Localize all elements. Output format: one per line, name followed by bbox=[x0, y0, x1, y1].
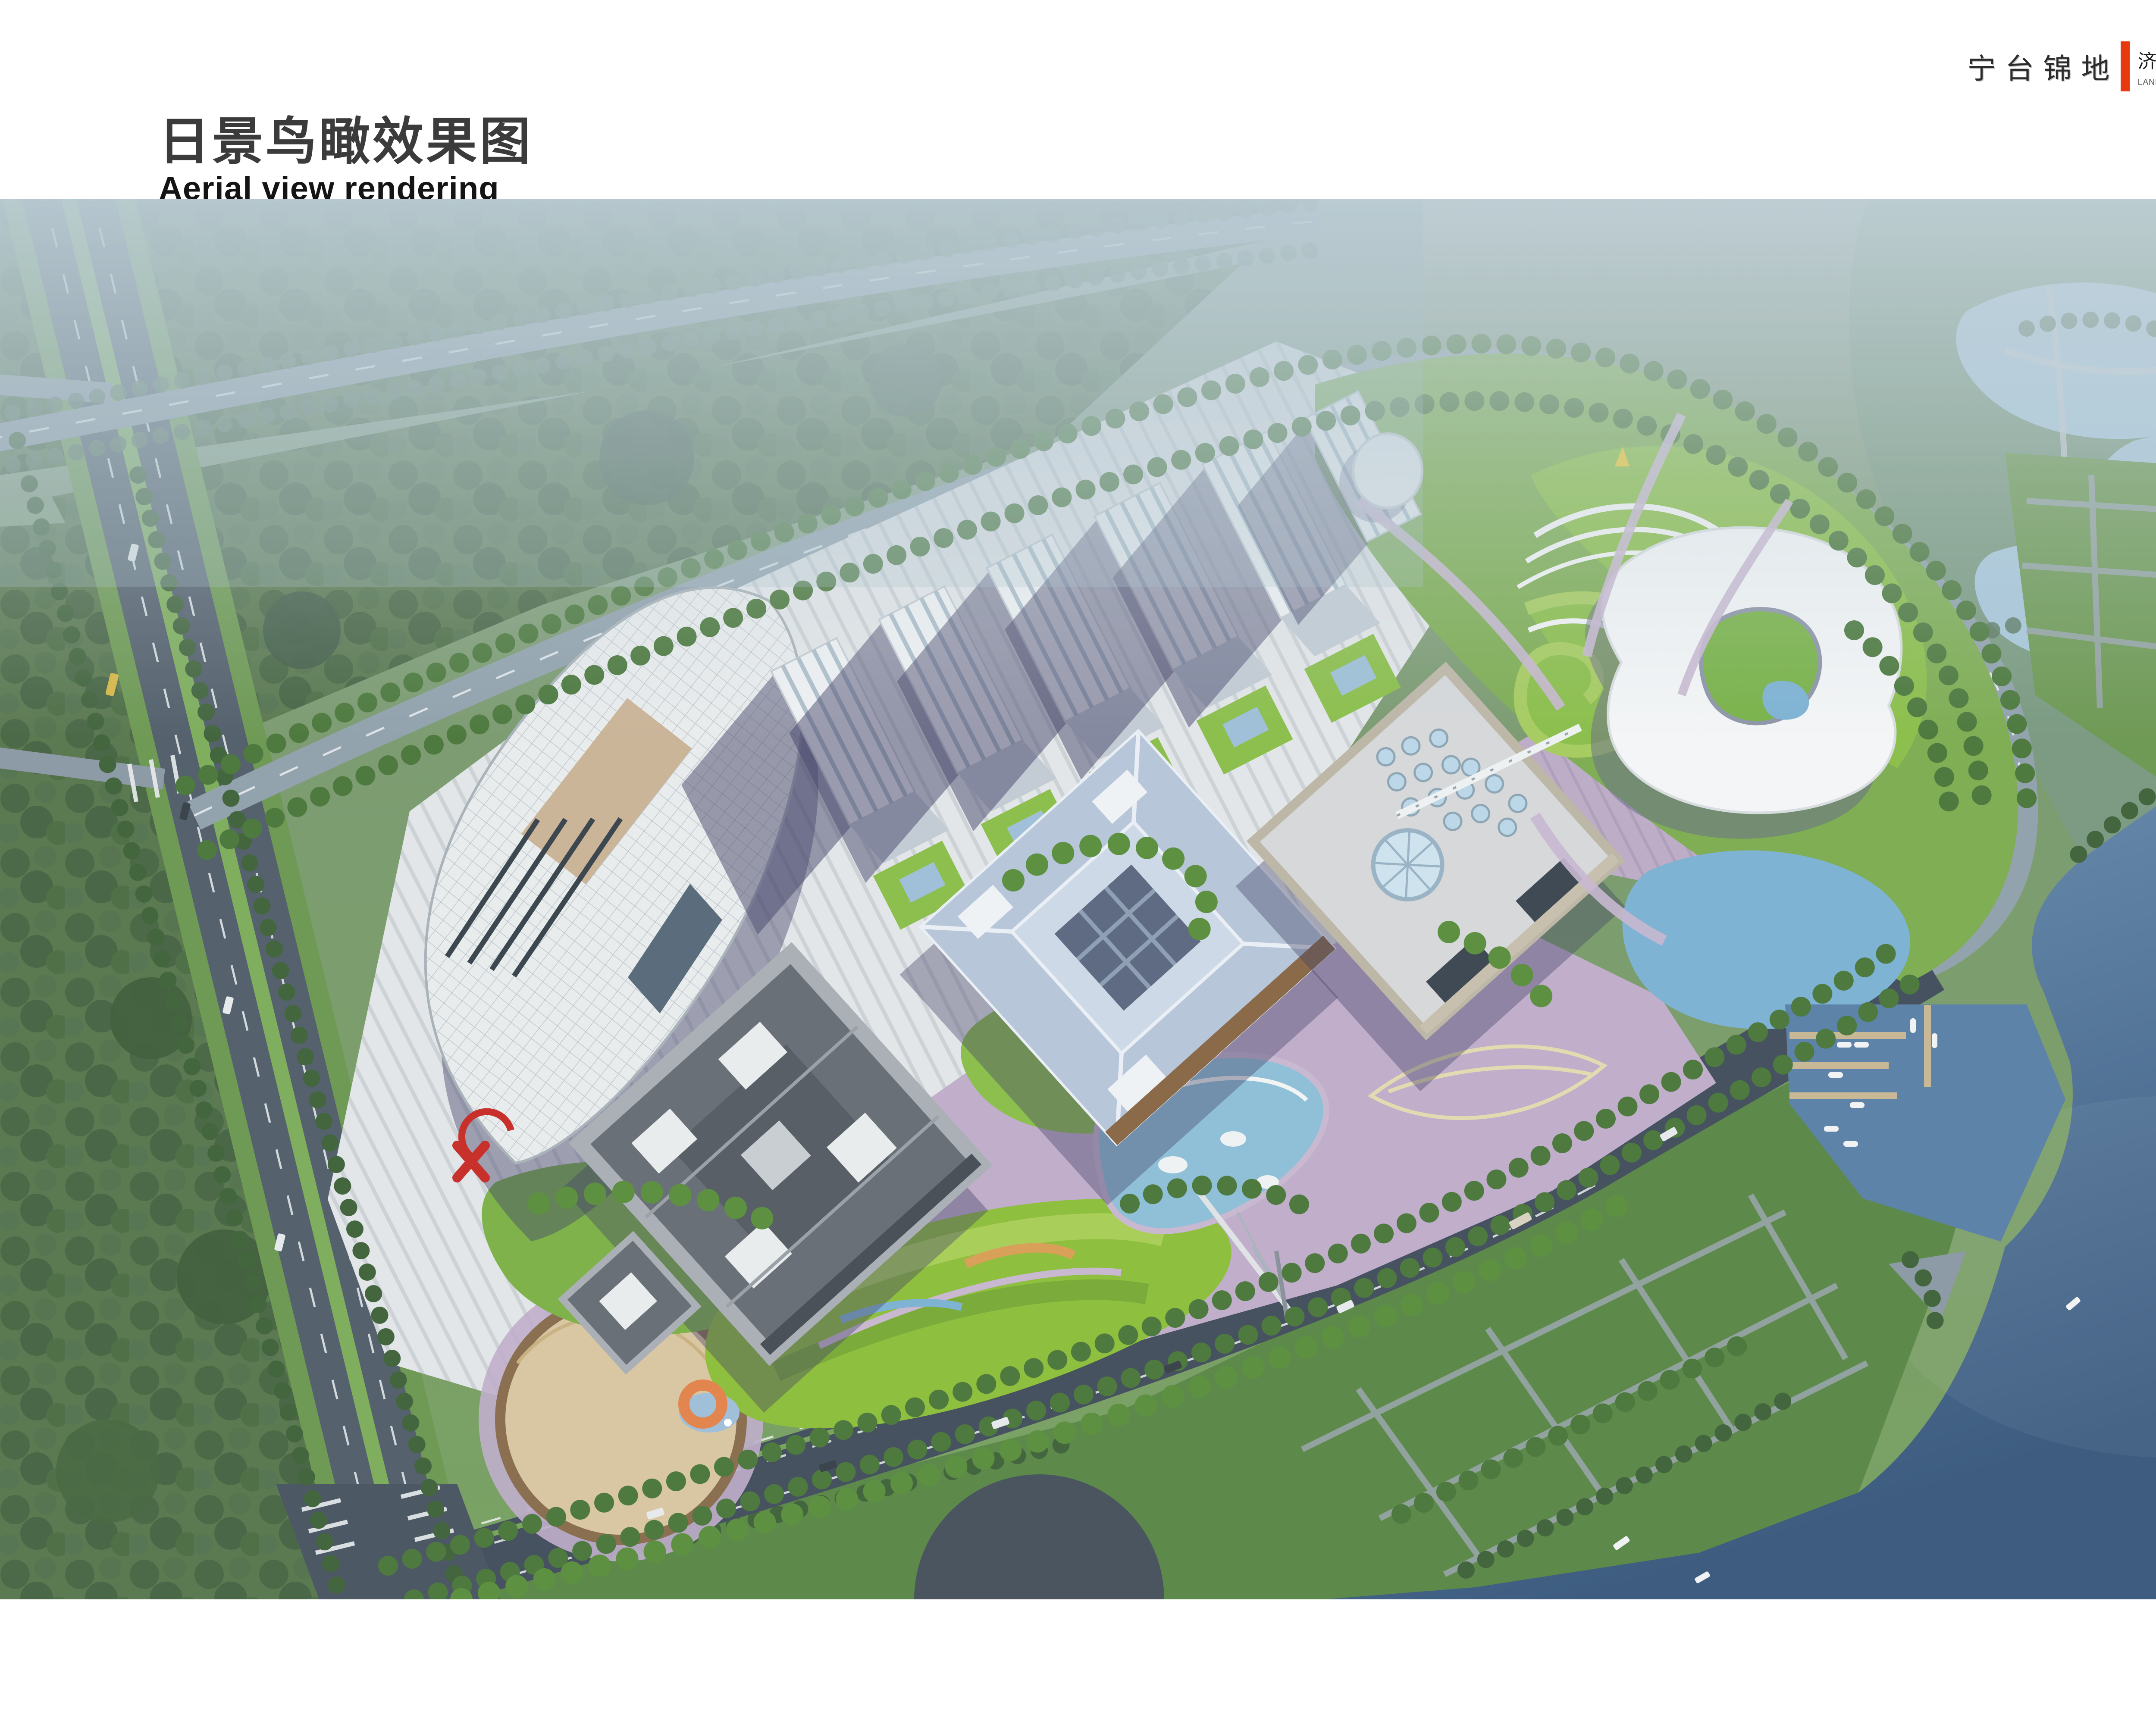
logo-project-chinese: 济宁文化中心景观设计 bbox=[2137, 46, 2156, 73]
presentation-page: 日景鸟瞰效果图 Aerial view rendering 宁台锦地 济宁文化中… bbox=[0, 0, 2156, 1711]
logo-project-block: 济宁文化中心景观设计 LANDSCAPE DESIGN OF JINING CU… bbox=[2137, 46, 2156, 88]
tree-clump bbox=[56, 1419, 160, 1523]
logo-brand-text: 宁台锦地 bbox=[1967, 46, 2119, 87]
stepping-stone bbox=[1158, 1156, 1188, 1173]
logo-project-english: LANDSCAPE DESIGN OF JINING CULTURAL CENT… bbox=[2137, 78, 2156, 88]
fountain-splash bbox=[724, 1419, 732, 1426]
aerial-rendering-svg bbox=[0, 199, 2156, 1599]
company-logo: 宁台锦地 济宁文化中心景观设计 LANDSCAPE DESIGN OF JINI… bbox=[1967, 41, 2156, 91]
page-title-block: 日景鸟瞰效果图 Aerial view rendering bbox=[159, 116, 533, 206]
aerial-rendering-image bbox=[0, 199, 2156, 1599]
logo-red-bar bbox=[2121, 41, 2130, 91]
stepping-stone bbox=[1220, 1131, 1246, 1147]
page-title-chinese: 日景鸟瞰效果图 bbox=[159, 116, 533, 169]
haze-overlay-left bbox=[0, 199, 1423, 587]
